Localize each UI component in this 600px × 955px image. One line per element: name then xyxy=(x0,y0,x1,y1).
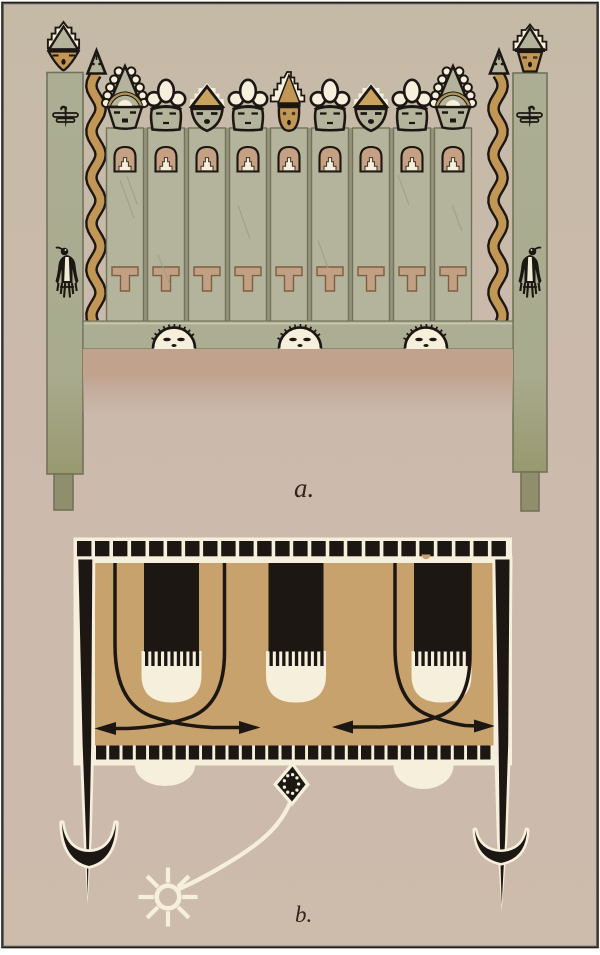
svg-text:a.: a. xyxy=(294,473,314,503)
svg-text:b.: b. xyxy=(295,902,312,927)
